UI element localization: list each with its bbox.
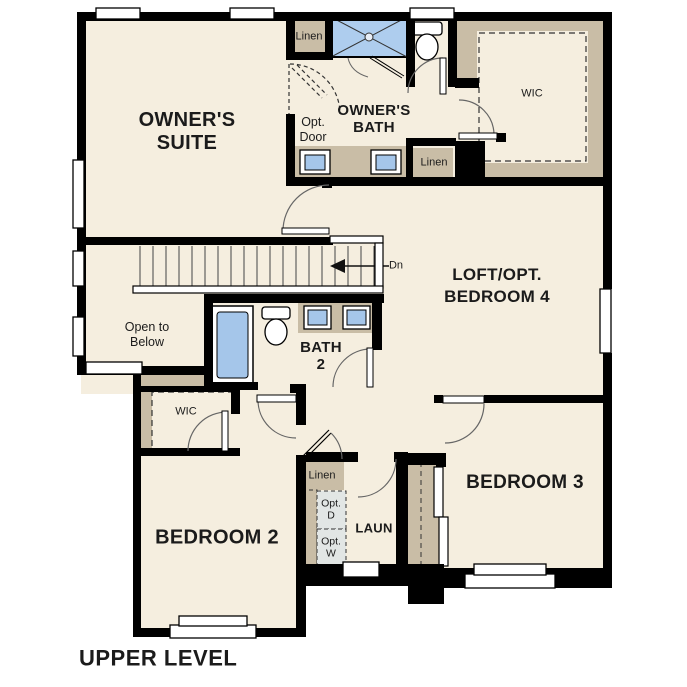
sink-owners-right xyxy=(371,150,401,174)
window-bedroom2-bay-b xyxy=(179,616,247,626)
label-opt-dryer: Opt. D xyxy=(321,499,341,522)
window-top-1 xyxy=(96,8,140,19)
room-label-owners-wic: WIC xyxy=(521,88,542,101)
plan-level-title: UPPER LEVEL xyxy=(79,645,237,670)
room-label-bedroom2: BEDROOM 2 xyxy=(155,527,279,550)
label-stairs-dn: Dn xyxy=(389,260,403,273)
window-top-2 xyxy=(230,8,274,19)
window-left-2 xyxy=(73,251,84,286)
window-bedroom3-a xyxy=(465,574,555,588)
toilet-bath2 xyxy=(262,307,290,345)
label-opt-door: Opt. Door xyxy=(299,115,326,145)
label-open-to-below: Open to Below xyxy=(125,320,169,350)
window-right-loft xyxy=(600,289,611,353)
window-left-3 xyxy=(73,317,84,356)
room-label-laundry: LAUN xyxy=(355,522,392,537)
room-label-bedroom2-wic: WIC xyxy=(175,406,196,419)
window-laundry xyxy=(343,562,379,577)
window-bedroom3-b xyxy=(474,564,546,575)
bathtub xyxy=(212,306,253,383)
sink-bath2-left xyxy=(304,306,331,329)
window-open-below xyxy=(86,362,142,374)
sink-owners-left xyxy=(300,150,330,174)
window-top-3 xyxy=(410,8,454,19)
room-label-bedroom3: BEDROOM 3 xyxy=(466,472,584,494)
room-label-owners-suite: OWNER'S SUITE xyxy=(139,109,236,155)
sink-bath2-right xyxy=(343,306,370,329)
window-bedroom2-bay-a xyxy=(170,625,256,638)
label-linen-bath: Linen xyxy=(421,157,448,170)
room-label-loft: LOFT/OPT. BEDROOM 4 xyxy=(444,264,550,308)
floor-plan: OWNER'S SUITE Linen OWNER'S BATH Opt. Do… xyxy=(0,0,687,687)
room-label-bath2: BATH 2 xyxy=(300,339,342,373)
window-left-1 xyxy=(73,160,84,228)
label-linen-top: Linen xyxy=(296,31,323,44)
label-linen-hall: Linen xyxy=(309,470,336,483)
room-label-owners-bath: OWNER'S BATH xyxy=(337,102,410,136)
label-opt-washer: Opt. W xyxy=(321,537,341,560)
